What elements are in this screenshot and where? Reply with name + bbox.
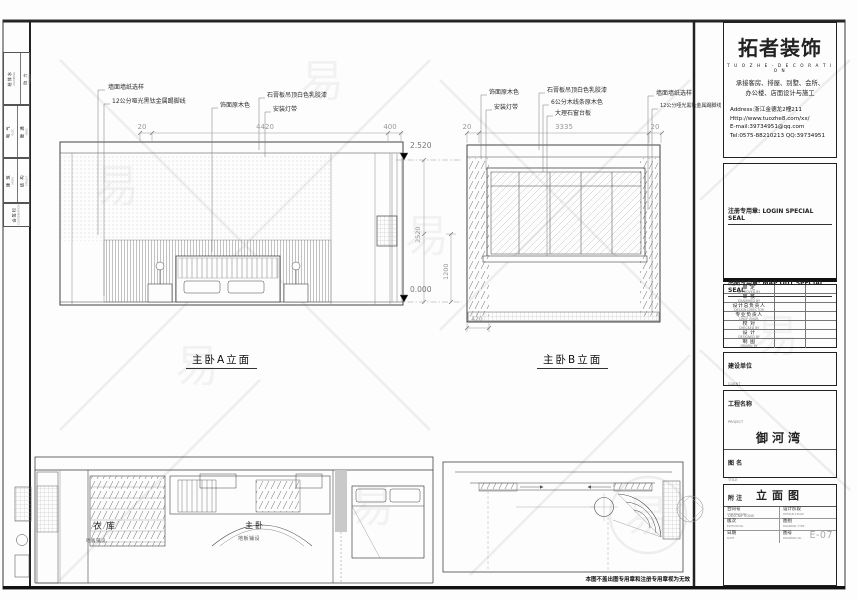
discipline-label: 动 力 (23, 72, 28, 85)
services-line2: 办公楼、店面设计与施工 (724, 89, 836, 99)
callout-wood-trim: 6公分木线条原木色 (551, 100, 603, 107)
dim-b-420: 420 (466, 317, 488, 324)
room-note-cloakroom: 地板铺设 (86, 540, 106, 545)
title-label: 图 名 (728, 460, 742, 467)
discipline-label: 电 气 (7, 125, 12, 138)
plan-bottom-left (15, 457, 433, 583)
table-row: 制 图DRAWN BY (724, 339, 836, 348)
company-logo-en: T U O Z H E - D E C O R A T I O N (724, 63, 836, 73)
callout-wood-finish: 饰面原木色 (489, 90, 519, 97)
dim-a-height-2520: 2520 (415, 226, 422, 243)
company-tel: Tel:0575-88210213 QQ:39734951 (730, 132, 836, 141)
project-name: 御河湾 (724, 429, 836, 446)
signoff-box-plumbing-power: 给排水PLUMBING 动 力POWER (3, 52, 30, 105)
table-row: 设计总负责人DESIGN DIRECTOR (724, 303, 836, 312)
discipline-label: 给排水 (8, 71, 13, 87)
dim-a-4420: 4420 (245, 124, 285, 132)
table-row: 专业负责人CHIEF ENGR. (724, 312, 836, 321)
notes-label: 附 注 (728, 495, 742, 502)
table-row: 校 对CHECKED BY (724, 321, 836, 330)
level-bottom: 0.000 (410, 286, 431, 294)
drawing-sheet: 易 易 易 易 易 易 易 (0, 0, 857, 600)
callout-wood-finish: 饰面原木色 (220, 103, 250, 110)
company-website: Http://www.tuozhe8.com/xx/ (730, 115, 836, 124)
register-seal-label: 注册专用章: LOGIN SPECIAL SEAL (728, 206, 832, 225)
dim-b-20-left: 20 (459, 124, 475, 132)
titleblock-client-box: 建设单位CLIENT (723, 352, 837, 386)
company-email: E-mail:39734951@qq.com (730, 123, 836, 132)
level-top: 2.520 (410, 142, 431, 150)
dim-b-3335: 3335 (546, 124, 582, 132)
table-row: 审 核EXAMINED BY (724, 294, 836, 303)
project-label: 工程名称 (728, 401, 752, 408)
callout-wallpaper: 墙面墙纸选样 (108, 85, 144, 92)
elevation-a-drawing (60, 142, 403, 305)
dim-a-height-1200: 1200 (443, 263, 450, 280)
elevation-a-title: 主卧A立面 (186, 355, 257, 369)
discipline-label: 建 筑 (7, 174, 12, 187)
elevation-b-drawing (467, 145, 660, 322)
callout-marble-sill: 大理石窗台板 (555, 111, 591, 118)
callout-skirting: 12公分哑光黑钛金属踢脚线 (112, 99, 186, 106)
callout-wallpaper: 墙面墙纸选样 (656, 91, 692, 98)
discipline-label: 暖 通 (20, 125, 25, 138)
titleblock-notes-box: 附 注DESCRIPTIONS (723, 484, 837, 586)
plan-bottom-right (443, 462, 703, 572)
room-note-master-bedroom: 地板铺设 (238, 537, 260, 543)
client-label: 建设单位 (728, 363, 752, 370)
table-row: 设 计DESIGNED BY (724, 330, 836, 339)
titleblock-personnel-table: 审 定APPROVED BY 审 核EXAMINED BY 设计总负责人DESI… (723, 284, 837, 348)
dim-a-400: 400 (378, 124, 402, 132)
titleblock-logo-box: 拓者装饰 T U O Z H E - D E C O R A T I O N 承… (723, 22, 837, 158)
services-line1: 承接客房、排屋、别墅、会所、 (724, 79, 836, 89)
company-address: Address:浙江金德龙2幢211 (730, 106, 836, 115)
dim-a-20: 20 (133, 124, 151, 132)
validity-note: 本图不盖出图专用章和注册专用章视为无效 (490, 577, 690, 583)
dim-b-20-right: 20 (647, 124, 663, 132)
titleblock-project-box: 工程名称PROJECT 御河湾 图 名TITLE 立面图 合同号CONTRACT… (723, 390, 837, 478)
room-label-master-bedroom: 主卧 (245, 522, 265, 531)
table-row: 审 定APPROVED BY (724, 285, 836, 294)
discipline-label: 结 构 (20, 174, 25, 187)
callout-ceiling: 石膏板吊顶白色乳胶漆 (547, 88, 607, 95)
titleblock-seal-box: 注册专用章: LOGIN SPECIAL SEAL 出图专用章: MAP OUT… (723, 163, 837, 282)
signoff-box-coordination: 会签栏COORDINATION (3, 203, 30, 227)
room-label-cloakroom: 衣库 (93, 523, 119, 533)
callout-light-strip: 安装灯带 (494, 105, 518, 112)
company-logo: 拓者装饰 (724, 32, 836, 61)
signoff-box-arch-struct: 建 筑ARCH. 结 构STRUCT. (3, 158, 30, 203)
elevation-b-title: 主卧B立面 (537, 355, 608, 369)
callout-skirting: 12公分哑光黑钛金属踢脚线 (660, 104, 721, 110)
signoff-box-elec-hvac: 电 气ELEC. 暖 通HVAC (3, 105, 30, 158)
callout-ceiling: 石膏板吊顶白色乳胶漆 (267, 93, 327, 100)
callout-light-strip: 安装灯带 (273, 107, 297, 114)
